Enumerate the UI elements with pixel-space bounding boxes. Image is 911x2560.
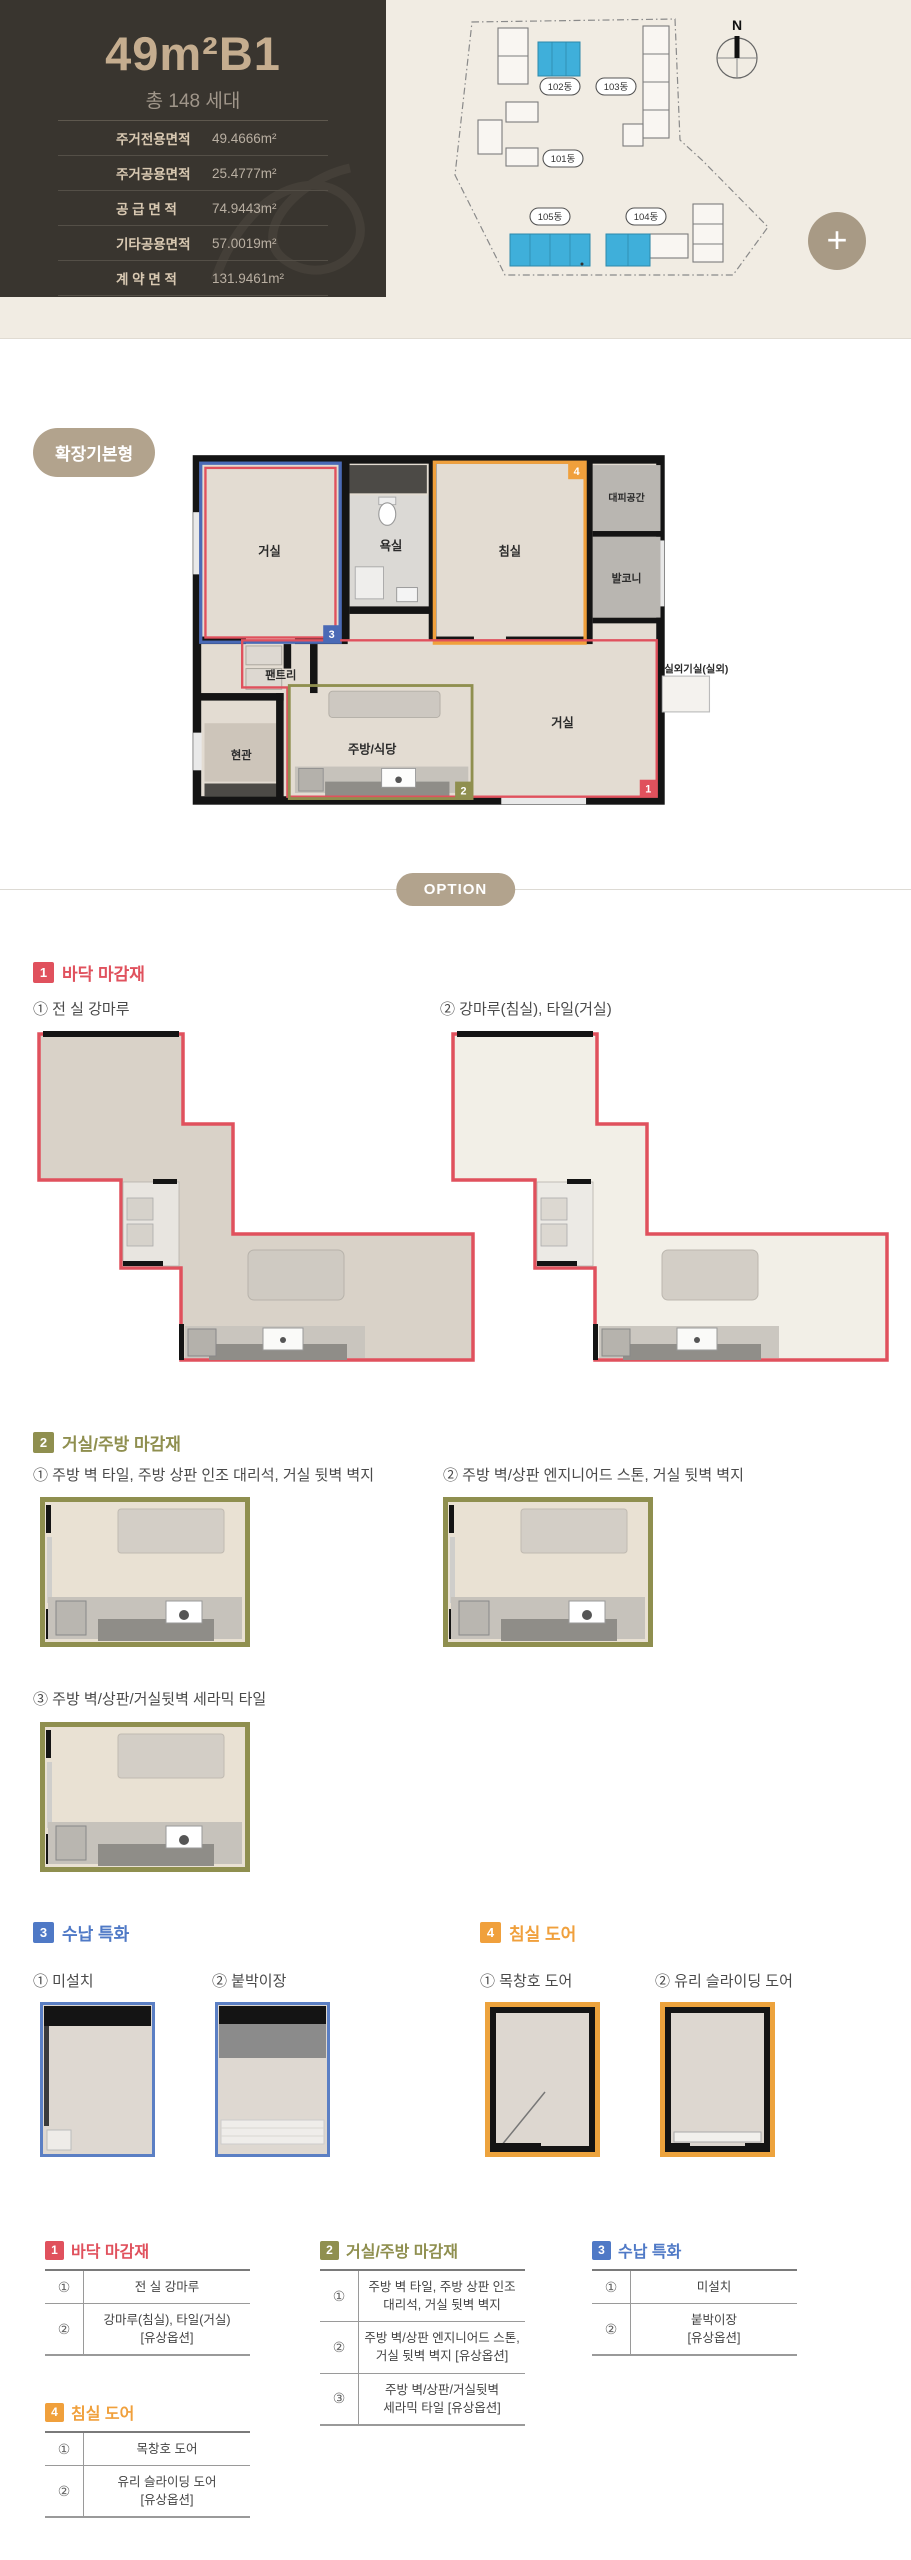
building-label-103: 103동 (596, 78, 636, 95)
spec-value: 74.9443m² (212, 201, 277, 216)
spec-label: 주거공용면적 (116, 163, 212, 183)
summary-number: 4 (45, 2403, 64, 2422)
row-value: 붙박이장 [유상옵션] (631, 2304, 797, 2354)
summary-title: 침실 도어 (71, 2400, 134, 2424)
row-value: 미설치 (631, 2271, 797, 2303)
spec-row: 계 약 면 적 131.9461m² (58, 261, 328, 296)
main-floor-plan: 3 4 2 1 거실 욕실 침실 대피공간 발코니 팬트리 현관 주방/식당 거… (168, 450, 778, 808)
building-label-105: 105동 (530, 208, 570, 225)
spec-row: 공 급 면 적 74.9443m² (58, 191, 328, 226)
spec-label: 주거전용면적 (116, 128, 212, 148)
room-label-bath: 욕실 (380, 538, 403, 553)
table-row: ② 주방 벽/상판 엔지니어드 스톤, 거실 뒷벽 벽지 [유상옵션] (320, 2322, 525, 2373)
summary-table-kitchen-header: 2 거실/주방 마감재 (320, 2238, 525, 2262)
row-number: ② (592, 2304, 631, 2354)
option-badge: OPTION (396, 873, 516, 906)
zoom-plus-button[interactable]: + (808, 212, 866, 270)
spec-label: 기타공용면적 (116, 233, 212, 253)
spec-row: 주거전용면적 49.4666m² (58, 121, 328, 156)
building-label-104: 104동 (626, 208, 666, 225)
plus-icon: + (826, 222, 847, 258)
section4-option2-label: ② 유리 슬라이딩 도어 (655, 1970, 793, 1991)
row-number: ③ (320, 2374, 359, 2424)
room-label-outdoor: 실외기실(실외) (664, 662, 728, 675)
closet-strip (350, 465, 427, 493)
room-label-entrance: 현관 (231, 748, 252, 762)
option-tag-1: 1 (640, 780, 657, 797)
unit-title: 49m²B1 (0, 26, 386, 81)
storage-option2-image (215, 2002, 330, 2157)
section1-option2-label: ② 강마루(침실), 타일(거실) (440, 998, 612, 1019)
option-tag-2: 2 (455, 782, 472, 799)
expand-base-badge: 확장기본형 (33, 428, 155, 477)
section1-number: 1 (33, 962, 54, 983)
site-plan-map: 102동 103동 101동 105동 104동 N (450, 12, 785, 290)
summary-table-kitchen: 2 거실/주방 마감재 ① 주방 벽 타일, 주방 상판 인조 대리석, 거실 … (320, 2238, 525, 2426)
spec-row: 주거공용면적 25.4777m² (58, 156, 328, 191)
table-row: ① 전 실 강마루 (45, 2271, 250, 2304)
building-label-102: 102동 (540, 78, 580, 95)
spec-value: 131.9461m² (212, 271, 284, 286)
outdoor-unit-box (662, 676, 709, 712)
section4-title: 침실 도어 (509, 1920, 576, 1945)
row-number: ② (45, 2304, 84, 2354)
summary-title: 바닥 마감재 (71, 2238, 149, 2262)
door-option2-image (660, 2002, 775, 2157)
row-number: ① (45, 2271, 84, 2303)
svg-text:104동: 104동 (634, 212, 659, 223)
spec-label: 계 약 면 적 (116, 268, 212, 288)
building-label-101: 101동 (543, 150, 583, 167)
shoe-closet (205, 784, 278, 797)
section2-title: 거실/주방 마감재 (62, 1430, 181, 1455)
summary-number: 1 (45, 2241, 64, 2260)
section3-option1-label: ① 미설치 (33, 1970, 94, 1991)
summary-table-floor: 1 바닥 마감재 ① 전 실 강마루 ② 강마루(침실), 타일(거실) [유상… (45, 2238, 250, 2356)
summary-table-door-header: 4 침실 도어 (45, 2400, 250, 2424)
row-number: ① (592, 2271, 631, 2303)
section1-title: 바닥 마감재 (62, 960, 145, 985)
summary-table-floor-header: 1 바닥 마감재 (45, 2238, 250, 2262)
room-label-kitchen: 주방/식당 (348, 741, 397, 756)
option-tag-3: 3 (323, 625, 340, 642)
summary-number: 2 (320, 2241, 339, 2260)
row-value: 주방 벽 타일, 주방 상판 인조 대리석, 거실 뒷벽 벽지 (359, 2271, 525, 2321)
row-value: 강마루(침실), 타일(거실) [유상옵션] (84, 2304, 250, 2354)
section1-option1-label: ① 전 실 강마루 (33, 998, 130, 1019)
spec-value: 25.4777m² (212, 166, 277, 181)
section3-number: 3 (33, 1922, 54, 1943)
row-value: 주방 벽/상판/거실뒷벽 세라믹 타일 [유상옵션] (359, 2374, 525, 2424)
row-value: 주방 벽/상판 엔지니어드 스톤, 거실 뒷벽 벽지 [유상옵션] (359, 2322, 525, 2372)
section2-header: 2 거실/주방 마감재 (33, 1430, 181, 1455)
room-label-balcony: 발코니 (612, 571, 642, 585)
section2-option3-label: ③ 주방 벽/상판/거실뒷벽 세라믹 타일 (33, 1688, 266, 1709)
summary-title: 수납 특화 (618, 2238, 681, 2262)
unit-subtitle: 총 148 세대 (0, 86, 386, 113)
section2-option2-label: ② 주방 벽/상판 엔지니어드 스톤, 거실 뒷벽 벽지 (443, 1464, 744, 1485)
table-row: ① 목창호 도어 (45, 2433, 250, 2466)
svg-text:4: 4 (574, 466, 580, 478)
site-dot (581, 263, 584, 266)
svg-text:3: 3 (329, 629, 335, 641)
unit-type-page: 49m²B1 총 148 세대 주거전용면적 49.4666m² 주거공용면적 … (0, 0, 911, 2560)
storage-option1-image (40, 2002, 155, 2157)
option-tag-4: 4 (568, 462, 585, 479)
svg-text:102동: 102동 (548, 82, 573, 93)
summary-table-storage-header: 3 수납 특화 (592, 2238, 797, 2262)
floor-option2-diagram (447, 1028, 897, 1366)
summary-table-door: 4 침실 도어 ① 목창호 도어 ② 유리 슬라이딩 도어 [유상옵션] (45, 2400, 250, 2518)
table-row: ① 주방 벽 타일, 주방 상판 인조 대리석, 거실 뒷벽 벽지 (320, 2271, 525, 2322)
compass-icon: N (717, 17, 757, 78)
svg-text:103동: 103동 (604, 82, 629, 93)
svg-text:105동: 105동 (538, 212, 563, 223)
section4-header: 4 침실 도어 (480, 1920, 576, 1945)
kitchen-option2-image (443, 1497, 653, 1647)
section3-option2-label: ② 붙박이장 (212, 1970, 286, 1991)
svg-text:1: 1 (645, 783, 651, 795)
table-row: ② 유리 슬라이딩 도어 [유상옵션] (45, 2466, 250, 2516)
section4-number: 4 (480, 1922, 501, 1943)
spec-row: 기타공용면적 57.0019m² (58, 226, 328, 261)
table-row: ② 강마루(침실), 타일(거실) [유상옵션] (45, 2304, 250, 2354)
spec-label: 공 급 면 적 (116, 198, 212, 218)
row-value: 유리 슬라이딩 도어 [유상옵션] (84, 2466, 250, 2516)
section3-title: 수납 특화 (62, 1920, 129, 1945)
kitchen-option3-image (40, 1722, 250, 1872)
row-value: 전 실 강마루 (84, 2271, 250, 2303)
spec-value: 57.0019m² (212, 236, 277, 251)
summary-number: 3 (592, 2241, 611, 2260)
row-number: ① (45, 2433, 84, 2465)
section2-number: 2 (33, 1432, 54, 1453)
room-label-bedroom: 침실 (498, 544, 521, 559)
outline-buildings (478, 26, 723, 262)
row-number: ② (45, 2466, 84, 2516)
room-label-living2: 거실 (551, 715, 574, 730)
svg-text:101동: 101동 (551, 154, 576, 165)
area-spec-table: 주거전용면적 49.4666m² 주거공용면적 25.4777m² 공 급 면 … (58, 120, 328, 296)
kitchen-option1-image (40, 1497, 250, 1647)
room-label-living1: 거실 (258, 544, 281, 559)
section4-option1-label: ① 목창호 도어 (480, 1970, 572, 1991)
row-value: 목창호 도어 (84, 2433, 250, 2465)
summary-title: 거실/주방 마감재 (346, 2238, 458, 2262)
table-row: ② 붙박이장 [유상옵션] (592, 2304, 797, 2354)
section3-header: 3 수납 특화 (33, 1920, 129, 1945)
svg-text:N: N (732, 17, 742, 33)
room-label-pantry: 팬트리 (265, 668, 296, 682)
door-option1-image (485, 2002, 600, 2157)
row-number: ① (320, 2271, 359, 2321)
table-row: ③ 주방 벽/상판/거실뒷벽 세라믹 타일 [유상옵션] (320, 2374, 525, 2424)
svg-text:2: 2 (461, 785, 467, 797)
floor-option1-diagram (33, 1028, 483, 1366)
section2-option1-label: ① 주방 벽 타일, 주방 상판 인조 대리석, 거실 뒷벽 벽지 (33, 1464, 374, 1485)
room-label-shelter: 대피공간 (608, 491, 644, 504)
table-row: ① 미설치 (592, 2271, 797, 2304)
spec-value: 49.4666m² (212, 131, 277, 146)
row-number: ② (320, 2322, 359, 2372)
summary-table-storage: 3 수납 특화 ① 미설치 ② 붙박이장 [유상옵션] (592, 2238, 797, 2356)
section1-header: 1 바닥 마감재 (33, 960, 145, 985)
